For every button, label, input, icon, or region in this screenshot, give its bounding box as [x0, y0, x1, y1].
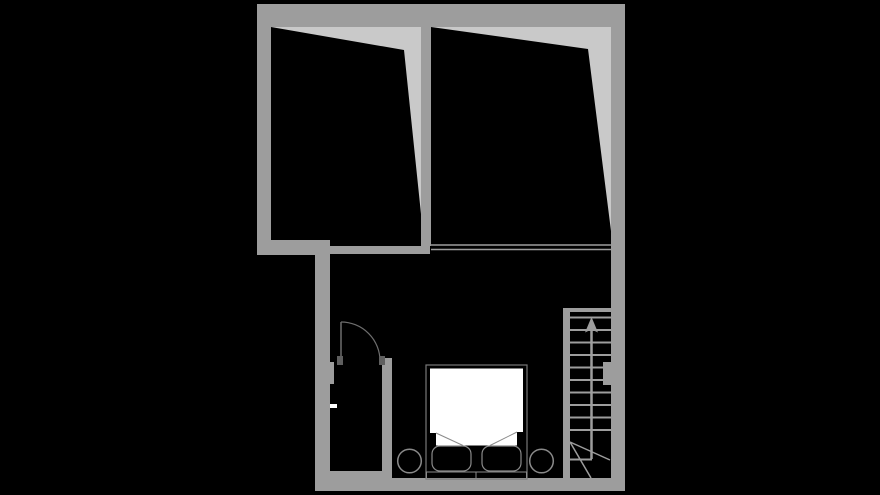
door-jamb-left — [337, 356, 343, 365]
bed-mattress — [430, 369, 523, 446]
bed-headboard-right — [476, 472, 527, 479]
nightstand-left — [398, 449, 422, 473]
bed-headboard-left — [427, 472, 477, 479]
floor-plan-canvas — [0, 0, 880, 495]
right-room-low-ceiling-wedge — [431, 27, 611, 231]
bed — [426, 365, 527, 479]
floor-plan-page — [0, 0, 880, 495]
door-jamb-right — [379, 356, 385, 365]
bed-pillow-left — [432, 446, 471, 471]
stair-wall-nib — [603, 362, 611, 385]
bed-pillow-right — [482, 446, 521, 471]
closet-west-wall-nub — [330, 362, 334, 384]
left-room-south-wall — [257, 240, 330, 255]
north-exterior-wall — [257, 4, 625, 27]
west-exterior-wall-upper — [257, 4, 271, 255]
staircase — [563, 308, 611, 480]
hall-north-wall — [330, 246, 430, 254]
door-swing-arc — [341, 322, 380, 361]
low-headroom-areas — [271, 27, 611, 231]
nightstand-right — [530, 449, 554, 473]
stair-stringer-wall — [563, 308, 570, 480]
stair-top-landing-edge — [563, 308, 611, 312]
west-exterior-wall-lower — [315, 255, 330, 491]
east-exterior-wall — [611, 4, 625, 491]
left-room-low-ceiling-wedge — [271, 27, 421, 214]
door — [330, 322, 385, 408]
ceiling-edge-lines — [431, 245, 611, 250]
wall-opening-marker — [330, 404, 337, 408]
closet-south-wall — [330, 471, 392, 480]
closet-east-wall — [382, 358, 392, 473]
room-divider-wall — [421, 27, 431, 246]
